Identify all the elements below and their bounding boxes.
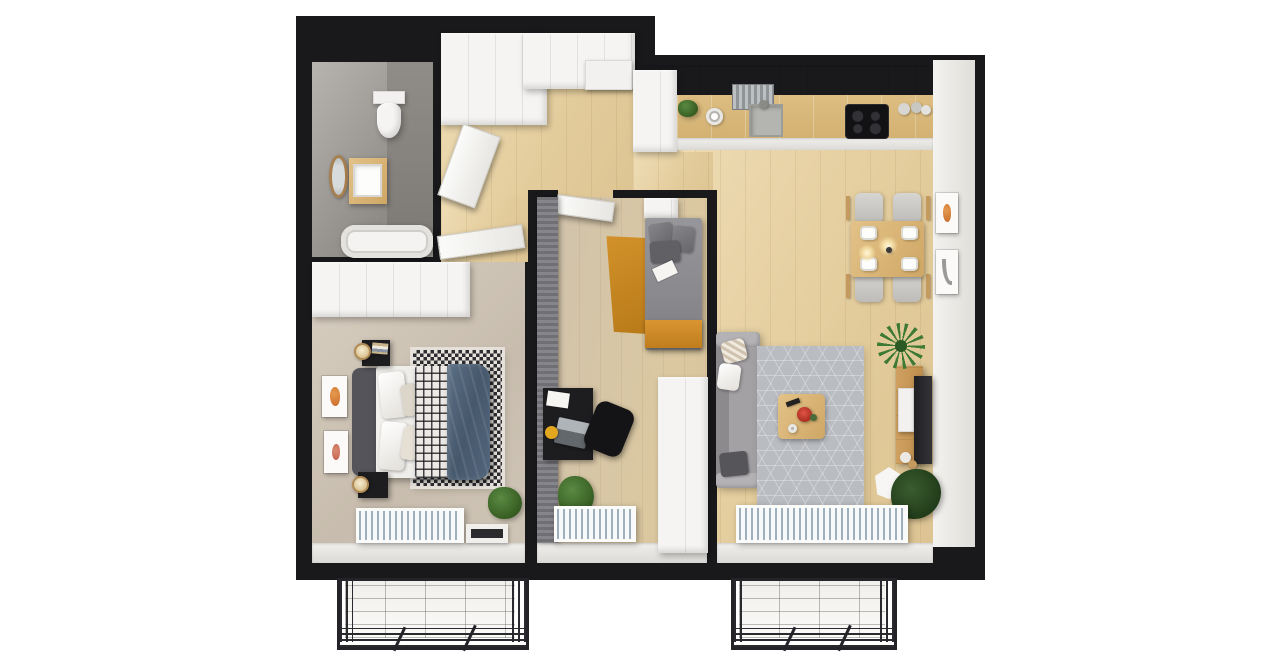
bedroom-wardrobe <box>312 262 470 317</box>
wall-midroom-left <box>528 190 537 563</box>
dining-chair-top-right <box>893 193 921 223</box>
tv-media-box <box>898 388 914 432</box>
kitchen-faucet <box>759 100 768 109</box>
bedroom-bottom-wall-face <box>312 543 525 563</box>
table-decor <box>886 247 892 253</box>
wall-midroom-top-right <box>613 190 717 198</box>
candle-glow-2 <box>858 244 876 262</box>
living-radiator <box>736 505 908 543</box>
lamp-bottom <box>352 476 369 493</box>
tv-panel <box>914 376 932 464</box>
bedroom-frame-2 <box>324 431 348 473</box>
wall-art-frame-2 <box>936 250 958 294</box>
wall-art-frame-1 <box>936 193 958 233</box>
right-wall-face <box>933 60 975 547</box>
balcony-2-rail-bottom <box>734 628 894 647</box>
bedroom-radiator <box>356 508 464 543</box>
bedroom-plant <box>488 487 522 519</box>
lamp-top <box>354 343 371 360</box>
midroom-dresser <box>644 198 678 218</box>
midroom-orange-throw <box>645 320 702 348</box>
kitchen-jar-1 <box>898 103 910 115</box>
dining-chair-top-left <box>855 193 883 223</box>
kitchen-sink <box>749 104 783 137</box>
kitchen-tall-unit <box>633 70 677 152</box>
chair-arm-1 <box>846 196 850 220</box>
sofa-pillow-dark <box>719 451 749 478</box>
midroom-wardrobe-white <box>658 377 708 553</box>
balcony-1-rail-bottom <box>340 628 526 647</box>
bed-duvet <box>447 364 490 480</box>
plate-2 <box>901 226 918 240</box>
toilet-bowl <box>377 103 401 138</box>
bathroom-mirror <box>329 155 348 198</box>
midroom-pillow-3 <box>649 240 680 264</box>
bedroom-floor-mat <box>466 524 508 543</box>
chair-arm-3 <box>926 196 930 220</box>
bed-plaid-blanket <box>415 366 449 478</box>
bedroom-frame-1 <box>322 376 347 417</box>
bathroom-tile-strip <box>387 62 433 238</box>
midroom-wardrobe-gray <box>537 197 558 543</box>
passage-floor <box>633 152 713 192</box>
plate-1 <box>860 226 877 240</box>
nightstand-books <box>372 342 389 354</box>
desk-lamp-yellow <box>545 426 558 439</box>
midroom-radiator <box>554 506 636 542</box>
kitchen-herb-plant <box>678 100 698 117</box>
bed-headboard <box>352 368 378 476</box>
kitchen-cup <box>706 108 723 125</box>
living-bottom-wall-face <box>717 543 933 563</box>
coffee-table-plant <box>810 414 817 421</box>
sofa-pillow-white <box>716 363 741 392</box>
palm-plant <box>877 323 925 369</box>
kitchen-cooktop <box>846 105 888 138</box>
chair-arm-4 <box>926 274 930 298</box>
bathtub <box>341 225 433 258</box>
desk-papers <box>546 391 570 409</box>
kitchen-counter-edge <box>677 138 933 150</box>
front-door-panel <box>585 60 632 90</box>
coffee-table-cup <box>788 424 797 433</box>
deco-ball-wood <box>908 460 917 469</box>
apartment-floor-plan-render <box>0 0 1280 667</box>
kitchen-jar-3 <box>921 105 931 115</box>
bathroom-basin <box>353 164 382 197</box>
kitchen-upper-cabinets <box>645 65 933 95</box>
candle-glow-1 <box>878 236 898 256</box>
chair-arm-2 <box>846 274 850 298</box>
plate-4 <box>901 257 918 271</box>
